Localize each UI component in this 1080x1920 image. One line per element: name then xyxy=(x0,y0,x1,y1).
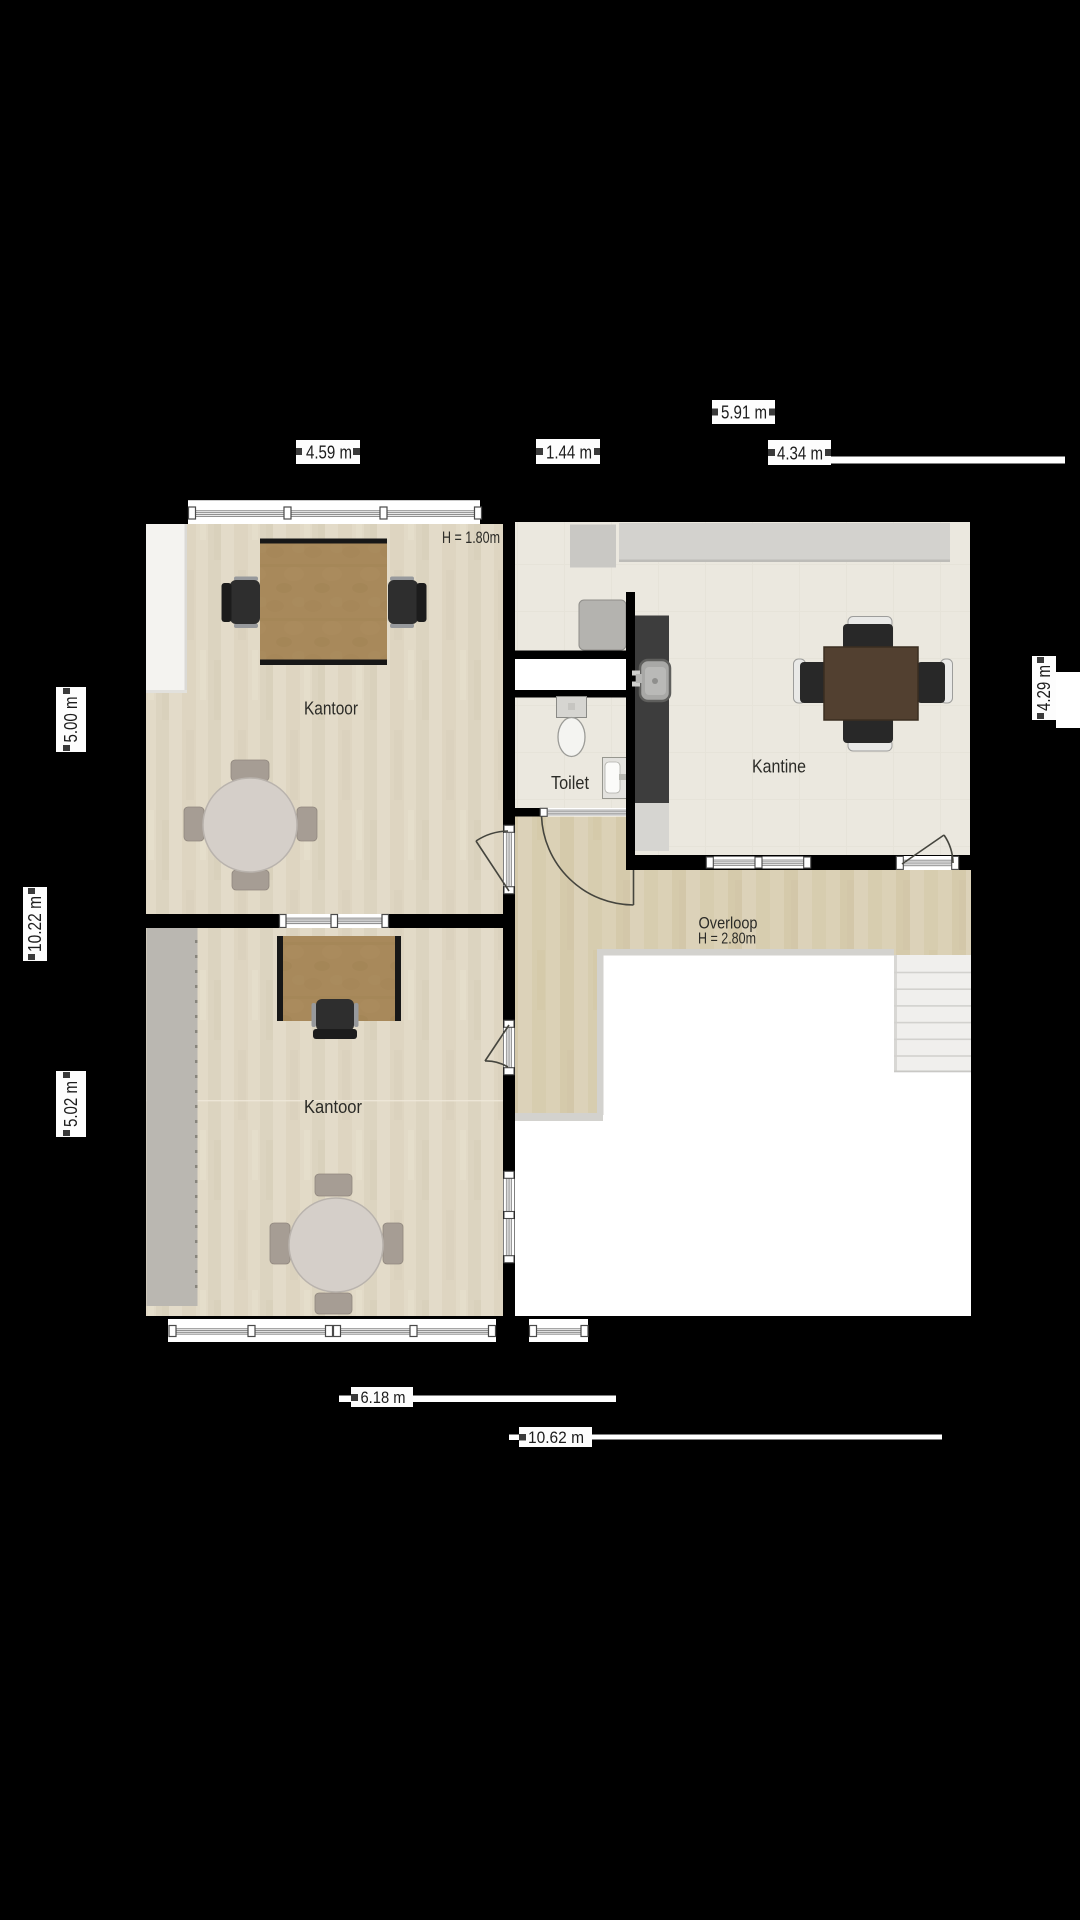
svg-text:5.91 m: 5.91 m xyxy=(721,403,767,423)
svg-text:4.59 m: 4.59 m xyxy=(306,443,352,463)
svg-text:Toilet: Toilet xyxy=(551,773,589,793)
svg-text:4.34 m: 4.34 m xyxy=(777,444,823,464)
svg-text:1.44 m: 1.44 m xyxy=(546,443,592,463)
svg-text:Kantine: Kantine xyxy=(752,757,806,777)
svg-text:H = 1.80m: H = 1.80m xyxy=(442,528,500,547)
svg-text:Kantoor: Kantoor xyxy=(304,1097,362,1117)
svg-text:H = 2.80m: H = 2.80m xyxy=(698,931,756,948)
svg-text:6.18 m: 6.18 m xyxy=(361,1388,406,1407)
svg-text:Kantoor: Kantoor xyxy=(304,699,358,719)
svg-text:10.22 m: 10.22 m xyxy=(25,896,45,952)
svg-text:5.00 m: 5.00 m xyxy=(61,697,81,743)
svg-text:10.62 m: 10.62 m xyxy=(528,1428,584,1447)
svg-text:4.29 m: 4.29 m xyxy=(1034,665,1054,711)
svg-text:5.02 m: 5.02 m xyxy=(61,1081,81,1127)
